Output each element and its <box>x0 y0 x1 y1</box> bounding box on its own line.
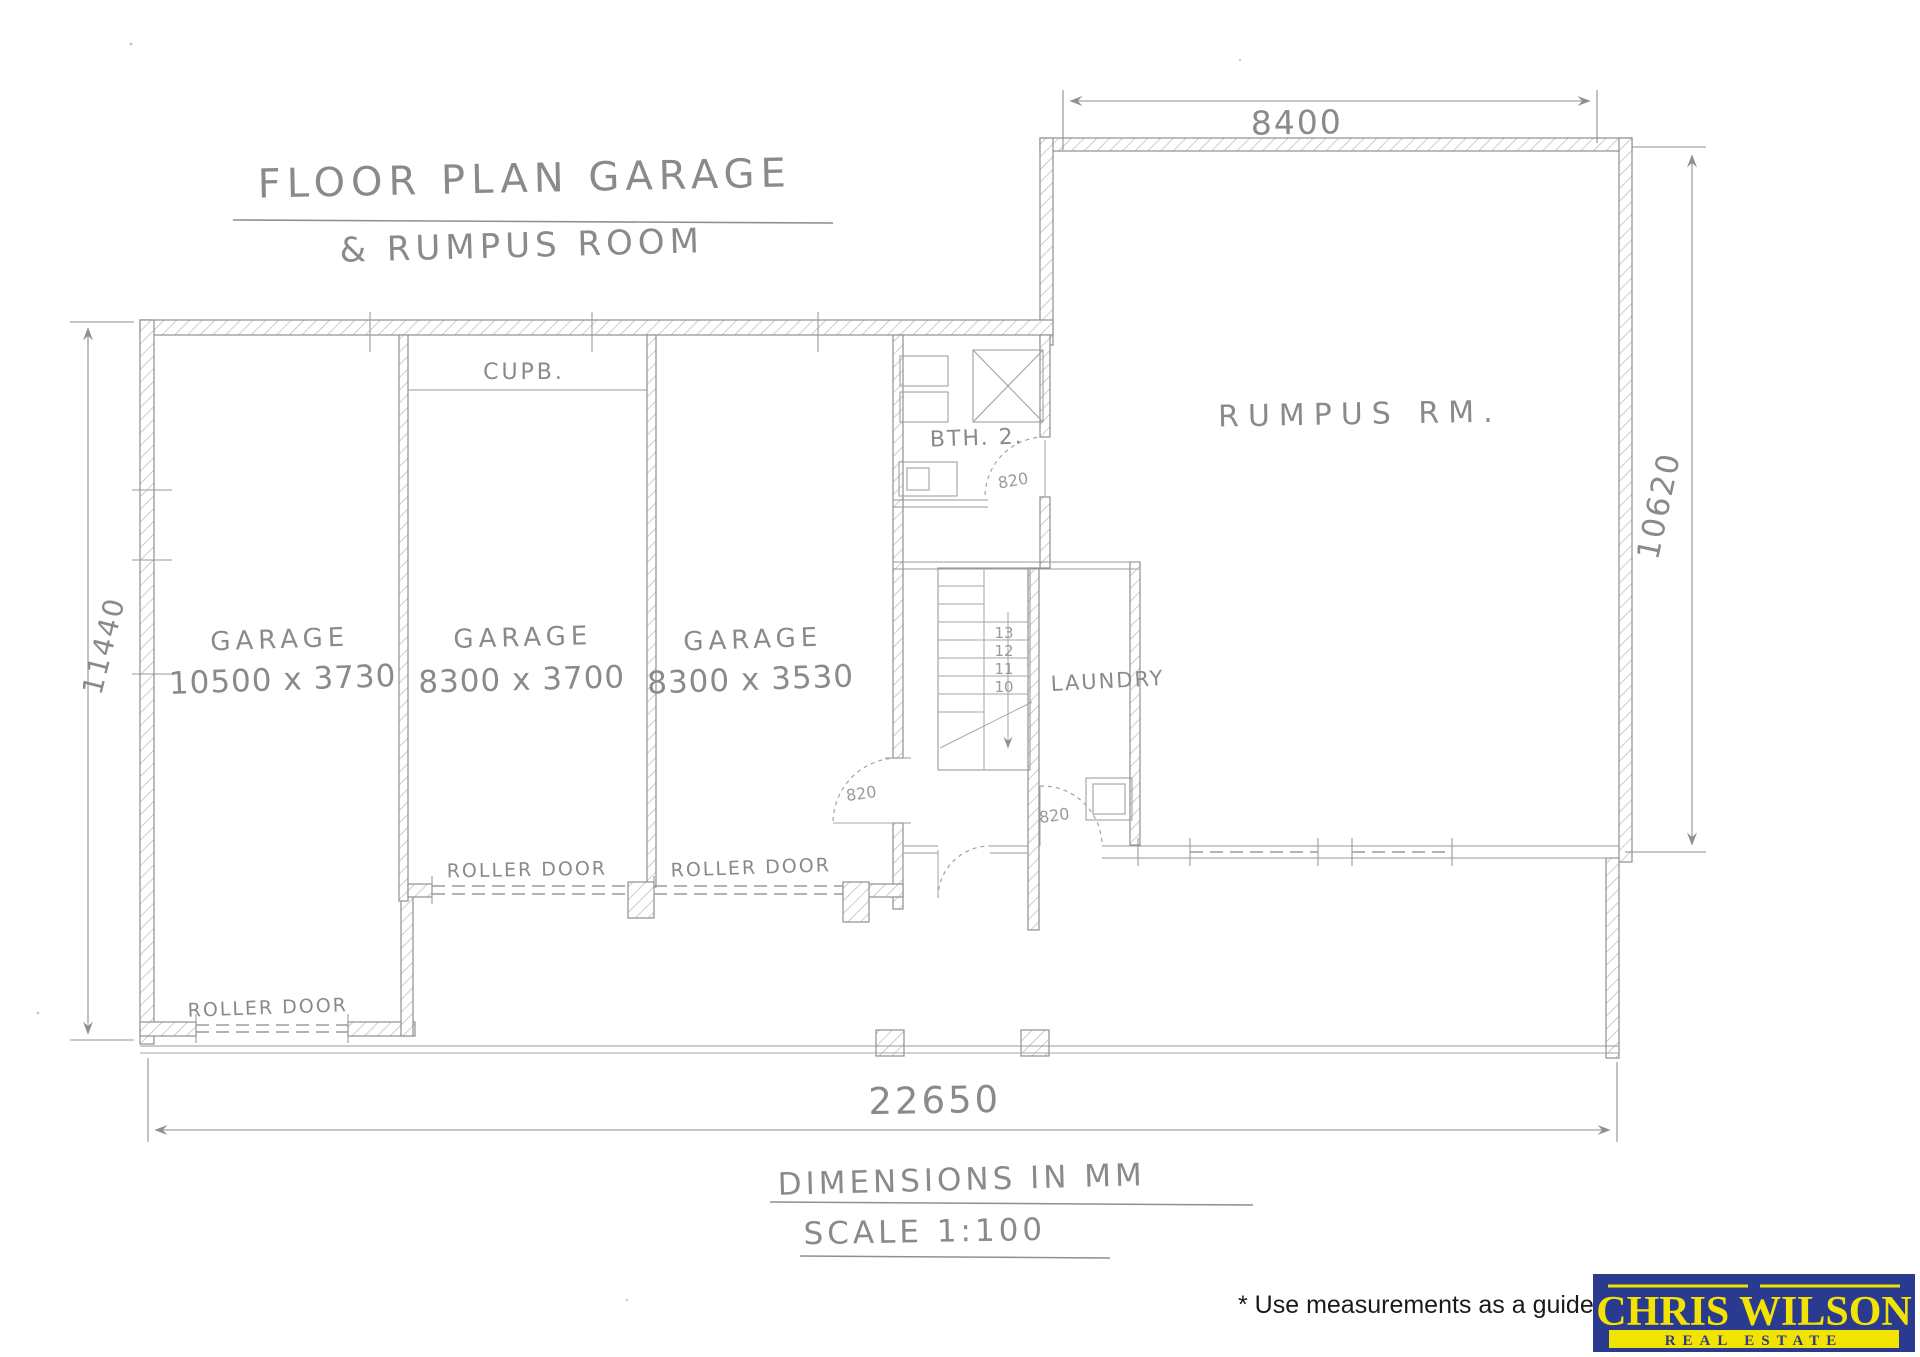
vanity-b <box>900 392 948 422</box>
slab-post-a <box>876 1030 904 1056</box>
entry-door-arc <box>938 846 990 898</box>
agency-logo: CHRIS WILSON REAL ESTATE <box>1593 1274 1915 1352</box>
bathroom-door-width: 820 <box>996 469 1029 493</box>
stair-tread-13: 13 <box>994 624 1013 642</box>
room-labels: GARAGE 10500 x 3730 GARAGE 8300 x 3700 G… <box>168 360 1502 1022</box>
wall-front-stub-a <box>408 884 432 897</box>
cupboard-label: CUPB. <box>483 360 565 385</box>
wall-step <box>401 896 413 1036</box>
garage2-size: 8300 x 3700 <box>418 659 626 700</box>
post-right <box>843 882 869 922</box>
dimension-bottom: 22650 <box>148 1058 1617 1142</box>
stair-tread-10: 10 <box>994 678 1013 696</box>
rumpus-label: RUMPUS RM. <box>1218 395 1502 435</box>
logo-tagline: REAL ESTATE <box>1665 1333 1844 1349</box>
roller-door-left-label: ROLLER DOOR <box>187 994 348 1022</box>
laundry-label: LAUNDRY <box>1050 666 1165 696</box>
thin-walls <box>140 390 1619 1053</box>
wall-divider-g2-g3 <box>647 335 656 887</box>
wall-bath-right-lower <box>1040 497 1050 568</box>
roller-door-right-label: ROLLER DOOR <box>670 854 831 882</box>
logo-brand: CHRIS WILSON <box>1596 1289 1912 1335</box>
fixtures <box>899 350 1132 820</box>
garage2-label: GARAGE <box>453 621 593 655</box>
dimension-left-value: 11440 <box>76 594 132 698</box>
wall-right-lower <box>1606 858 1619 1058</box>
stair-tread-11: 11 <box>994 660 1013 678</box>
wall-divider-g1-g2 <box>399 335 408 901</box>
dimension-left: 11440 <box>70 322 134 1040</box>
roller-door-middle-label: ROLLER DOOR <box>447 858 608 883</box>
scanned-floor-plan-page: FLOOR PLAN GARAGE & RUMPUS ROOM <box>0 0 1920 1357</box>
post-center <box>628 882 654 918</box>
dimension-right-value: 10620 <box>1630 449 1688 563</box>
exterior-walls <box>140 138 1632 1058</box>
plan-title-line1: FLOOR PLAN GARAGE <box>257 150 792 207</box>
dimension-top-value: 8400 <box>1250 102 1343 143</box>
garage-door-width: 820 <box>845 782 878 805</box>
dimension-bottom-value: 22650 <box>868 1078 1001 1123</box>
vanity-a <box>900 356 948 386</box>
slab-post-b <box>1021 1030 1049 1056</box>
scale-note: SCALE 1:100 <box>803 1212 1046 1252</box>
stair-tread-12: 12 <box>994 642 1013 660</box>
units-note: DIMENSIONS IN MM <box>777 1157 1146 1203</box>
wall-rumpus-right <box>1619 138 1632 862</box>
disclaimer-note: * Use measurements as a guide only <box>1238 1291 1647 1319</box>
staircase: 13 12 11 10 <box>938 568 1032 770</box>
toilet <box>899 462 957 496</box>
wall-main-left <box>140 320 154 1044</box>
title-underline <box>233 220 833 223</box>
floor-plan-drawing: FLOOR PLAN GARAGE & RUMPUS ROOM <box>0 0 1920 1357</box>
plan-title-line2: & RUMPUS ROOM <box>339 221 704 271</box>
garage1-label: GARAGE <box>210 623 350 658</box>
wall-garage3-right-a <box>893 335 903 758</box>
plan-notes: DIMENSIONS IN MM SCALE 1:100 <box>770 1157 1253 1258</box>
garage3-label: GARAGE <box>683 623 823 658</box>
hall-door-width: 820 <box>1038 804 1071 827</box>
garage3-size: 8300 x 3530 <box>647 658 855 701</box>
door-swings <box>833 437 1102 898</box>
dimension-right: 10620 <box>1625 147 1706 852</box>
bathroom-label: BTH. 2. <box>930 424 1024 452</box>
wall-rumpus-left-upper <box>1040 138 1053 345</box>
title-block: FLOOR PLAN GARAGE & RUMPUS ROOM <box>233 150 833 270</box>
wall-garage1-front-a <box>140 1022 196 1036</box>
garage1-size: 10500 x 3730 <box>168 658 397 702</box>
wall-main-top <box>140 320 1053 335</box>
